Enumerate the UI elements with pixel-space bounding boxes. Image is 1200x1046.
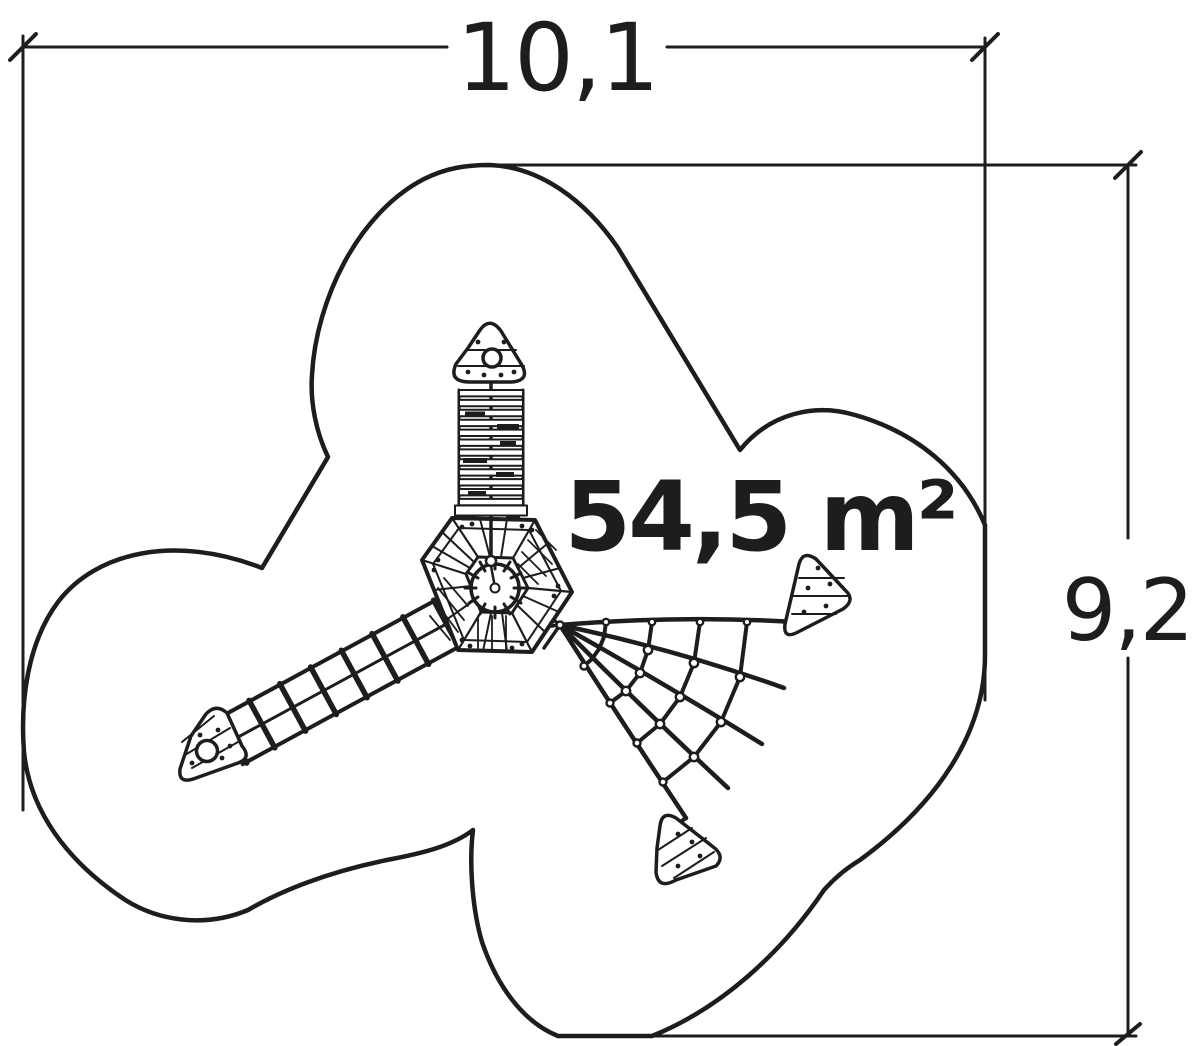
rope-ring-small xyxy=(486,556,496,566)
height-dimension-label: 9,2 xyxy=(1062,561,1193,661)
anchor-pad-left xyxy=(180,708,246,780)
net-radial-ropes xyxy=(560,619,795,818)
area-label: 54,5 m² xyxy=(564,461,955,573)
anchor-pad-top xyxy=(454,323,525,382)
net-knots xyxy=(557,619,751,786)
central-platform xyxy=(422,518,572,652)
equipment-plan-drawing: 10,1 9,2 xyxy=(0,0,1200,1046)
plan-drawing-page: 10,1 9,2 xyxy=(0,0,1200,1046)
width-dimension-label: 10,1 xyxy=(456,4,657,113)
rope-ring xyxy=(197,741,218,762)
anchor-pad-bottom xyxy=(656,815,720,883)
climbing-net xyxy=(534,608,801,823)
rope-ring xyxy=(483,349,501,367)
